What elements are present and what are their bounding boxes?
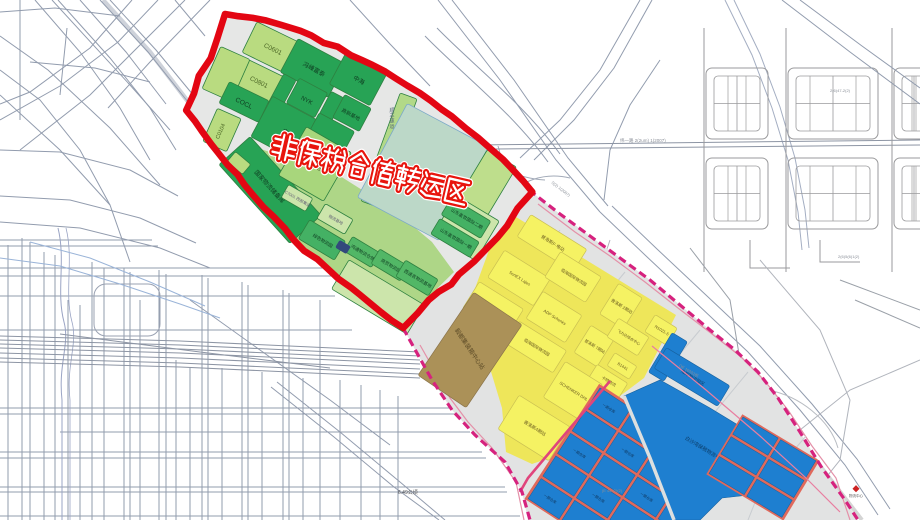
- svg-text:物流中心: 物流中心: [849, 493, 863, 498]
- svg-text:(E 4402)(2): (E 4402)(2): [602, 488, 623, 493]
- svg-text:2(6)5(6)1(2): 2(6)5(6)1(2): [838, 254, 860, 259]
- svg-text:顺丰速运: 顺丰速运: [389, 108, 394, 130]
- svg-text:2(6)47-2(2): 2(6)47-2(2): [830, 88, 851, 93]
- svg-text:6.49公顷: 6.49公顷: [398, 489, 418, 496]
- svg-text:纬一路 2(2um) 1(2007): 纬一路 2(2um) 1(2007): [620, 137, 666, 144]
